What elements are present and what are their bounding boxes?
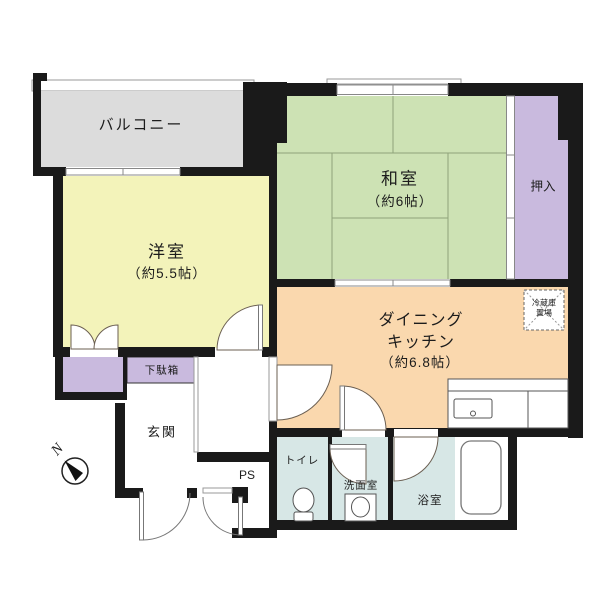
shoe-cabinet-label: 下駄箱 xyxy=(145,363,180,378)
wall-segment xyxy=(33,73,41,176)
bathroom-label: 浴室 xyxy=(418,492,443,508)
wall-segment xyxy=(180,167,243,176)
room-closet xyxy=(63,355,123,392)
balcony-label: バルコニー xyxy=(99,114,184,135)
entrance-door-arc xyxy=(143,493,190,540)
floorplan-drawing xyxy=(0,0,600,600)
hall-dk-opening xyxy=(269,357,277,421)
dk-label-line2: キッチン xyxy=(387,328,455,352)
balcony-rail-line xyxy=(32,80,254,91)
fusuma-oshiire xyxy=(507,96,515,279)
wall-segment xyxy=(269,428,342,437)
dk-label-line1: ダイニング xyxy=(378,306,463,330)
wall-segment xyxy=(115,488,143,498)
wall-segment xyxy=(558,83,583,140)
pipe-space-label: PS xyxy=(239,468,255,482)
washroom-label: 洗面室 xyxy=(344,478,379,493)
wall-segment xyxy=(247,83,337,96)
wall-segment xyxy=(53,170,63,357)
wall-segment xyxy=(115,403,125,498)
wall-segment xyxy=(269,176,277,363)
washbasin-fixture xyxy=(345,494,376,521)
entrance-label: 玄関 xyxy=(147,422,177,441)
wall-segment xyxy=(243,143,277,176)
toilet-tank xyxy=(294,512,313,521)
wall-segment xyxy=(123,355,127,400)
meter-door-leaf xyxy=(239,497,243,535)
wall-segment xyxy=(33,73,47,81)
western-room-door-leaf xyxy=(259,305,263,350)
wall-segment xyxy=(55,392,127,400)
wall-segment xyxy=(187,488,197,498)
kitchen-faucet xyxy=(471,411,476,416)
kitchen-counter xyxy=(448,379,568,428)
wall-segment xyxy=(450,279,583,287)
western-room-size-label: （約5.5帖） xyxy=(127,262,207,282)
toilet-fixture xyxy=(293,488,314,521)
washroom-toilet-door-leaf xyxy=(330,445,366,450)
wall-segment xyxy=(277,279,335,287)
toilet-bowl xyxy=(293,488,314,512)
toilet-label: トイレ xyxy=(285,453,320,468)
entrance-partition-line xyxy=(194,357,198,452)
north-compass xyxy=(62,458,88,484)
wall-segment xyxy=(197,452,273,462)
japanese-room-label: 和室 xyxy=(381,165,419,190)
meter-door-closed xyxy=(203,488,232,493)
entrance-door-leaf xyxy=(140,492,144,540)
bathtub xyxy=(461,441,501,514)
dk-washroom-door-leaf xyxy=(340,386,345,430)
wall-segment xyxy=(388,437,393,520)
wall-segment xyxy=(508,437,517,530)
bathroom-door-gap xyxy=(394,429,438,437)
japanese-room-size-label: （約6帖） xyxy=(367,190,434,210)
refrigerator-label-line2: 置場 xyxy=(536,308,552,319)
dk-size-label: （約6.8帖） xyxy=(380,351,460,371)
oshiire-label: 押入 xyxy=(530,176,555,195)
western-room-label: 洋室 xyxy=(148,238,186,263)
floorplan: バルコニー 和室 （約6帖） 押入 洋室 （約5.5帖） ダイニング キッチン … xyxy=(0,0,600,600)
wall-segment xyxy=(117,347,215,357)
washbasin-bowl xyxy=(352,497,370,517)
